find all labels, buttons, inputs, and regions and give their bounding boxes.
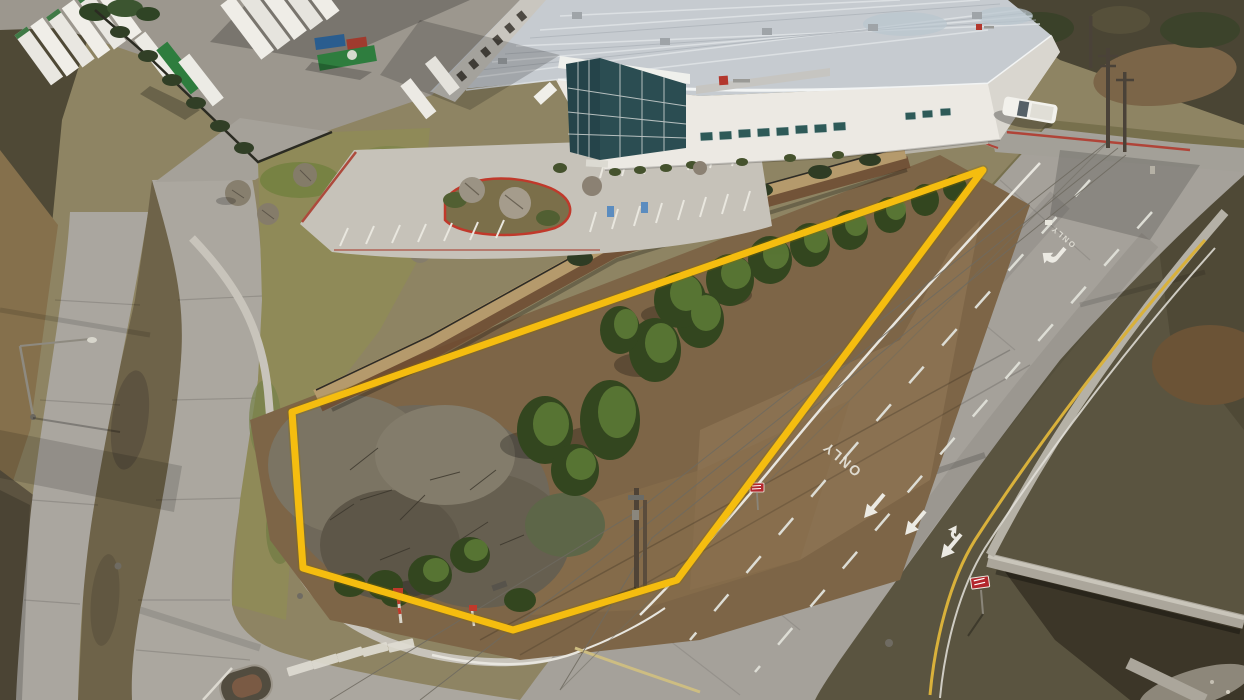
small-gray-sign: [1150, 166, 1155, 174]
building-logo-east-icon: [976, 24, 982, 30]
small-white-sign: [1045, 220, 1052, 225]
building-logo-icon: [719, 76, 729, 86]
aerial-photo: ONLY ONLY: [0, 0, 1244, 700]
scene-svg: ONLY ONLY: [0, 0, 1244, 700]
